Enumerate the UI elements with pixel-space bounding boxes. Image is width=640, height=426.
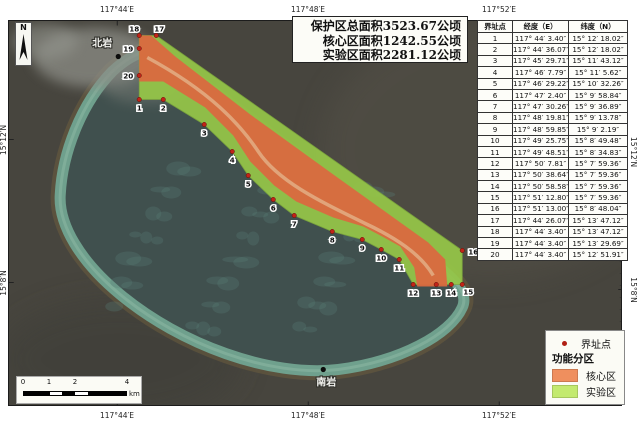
boundary-point-dot	[137, 73, 141, 77]
legend-core-row: 核心区	[552, 367, 620, 383]
longitude-cell: 117° 44′ 3.40″	[513, 238, 569, 249]
longitude-cell: 117° 49′ 25.75″	[513, 135, 569, 146]
boundary-point-number: 14	[446, 289, 456, 298]
longitude-cell: 117° 48′ 19.81″	[513, 112, 569, 123]
boundary-point-dot-icon	[562, 341, 567, 346]
point-id-cell: 1	[478, 33, 513, 44]
point-id-cell: 4	[478, 67, 513, 78]
legend-experimental-row: 实验区	[552, 383, 620, 399]
core-zone-swatch	[552, 369, 578, 382]
point-id-cell: 16	[478, 203, 513, 214]
latitude-cell: 15° 9′ 2.19″	[569, 124, 628, 135]
scale-bar-segment	[62, 392, 75, 395]
table-row: 13117° 50′ 38.64″15° 7′ 59.36″	[478, 169, 628, 180]
table-row: 19117° 44′ 3.40″15° 13′ 29.69″	[478, 238, 628, 249]
latitude-cell: 15° 13′ 29.69″	[569, 238, 628, 249]
latitude-cell: 15° 12′ 51.91″	[569, 249, 628, 260]
north-arrow: N	[15, 22, 32, 66]
table-row: 15117° 51′ 12.80″15° 7′ 59.36″	[478, 192, 628, 203]
rock-dot	[116, 54, 121, 59]
boundary-point-dot	[230, 149, 234, 153]
latitude-cell: 15° 8′ 34.83″	[569, 146, 628, 157]
longitude-cell: 117° 44′ 26.07″	[513, 215, 569, 226]
stats-line-total: 保护区总面积3523.67公顷	[293, 19, 461, 34]
legend-group-title: 功能分区	[552, 351, 620, 367]
scale-tick-label: 4	[125, 378, 129, 386]
latitude-cell: 15° 13′ 47.12″	[569, 215, 628, 226]
table-row: 11117° 49′ 48.51″15° 8′ 34.83″	[478, 146, 628, 157]
point-id-cell: 12	[478, 158, 513, 169]
boundary-point-number: 3	[202, 129, 207, 138]
longitude-cell: 117° 48′ 59.85″	[513, 124, 569, 135]
longitude-cell: 117° 45′ 29.71″	[513, 55, 569, 66]
boundary-point-number: 18	[129, 25, 139, 34]
point-id-cell: 2	[478, 44, 513, 55]
point-id-cell: 13	[478, 169, 513, 180]
point-id-cell: 9	[478, 124, 513, 135]
boundary-point-dot	[460, 282, 464, 286]
legend-experimental-label: 实验区	[586, 384, 616, 399]
boundary-point-number: 8	[330, 236, 335, 245]
table-row: 1117° 44′ 3.40″15° 12′ 18.02″	[478, 33, 628, 44]
longitude-cell: 117° 49′ 48.51″	[513, 146, 569, 157]
latitude-cell: 15° 13′ 47.12″	[569, 226, 628, 237]
boundary-coordinate-table: 界址点 经度（E） 纬度（N） 1117° 44′ 3.40″15° 12′ 1…	[477, 20, 628, 261]
table-row: 12117° 50′ 7.81″15° 7′ 59.36″	[478, 158, 628, 169]
boundary-point-dot	[161, 97, 165, 101]
longitude-cell: 117° 47′ 2.40″	[513, 89, 569, 100]
longitude-cell: 117° 50′ 7.81″	[513, 158, 569, 169]
experimental-zone-swatch	[552, 385, 578, 398]
boundary-point-number: 11	[394, 264, 404, 273]
longitude-cell: 117° 46′ 7.79″	[513, 67, 569, 78]
longitude-cell: 117° 51′ 12.80″	[513, 192, 569, 203]
latitude-cell: 15° 9′ 13.78″	[569, 112, 628, 123]
table-row: 20117° 44′ 3.40″15° 12′ 51.91″	[478, 249, 628, 260]
table-row: 9117° 48′ 59.85″15° 9′ 2.19″	[478, 124, 628, 135]
rock-name-label: 北岩	[92, 37, 112, 50]
point-id-cell: 14	[478, 181, 513, 192]
scale-tick-label: 2	[73, 378, 77, 386]
scale-bar: 0124 km	[16, 376, 142, 404]
latitude-cell: 15° 11′ 43.12″	[569, 55, 628, 66]
boundary-point-dot	[137, 33, 141, 37]
scale-bar-segment	[88, 392, 126, 395]
longitude-cell: 117° 44′ 3.40″	[513, 249, 569, 260]
latitude-cell: 15° 9′ 58.84″	[569, 89, 628, 100]
point-id-cell: 19	[478, 238, 513, 249]
boundary-point-dot	[246, 173, 250, 177]
axis-label-bottom: 117°48′E	[291, 411, 325, 420]
boundary-point-dot	[397, 257, 401, 261]
boundary-point-number: 12	[408, 289, 418, 298]
scale-bar-segment	[24, 392, 50, 395]
table-row: 8117° 48′ 19.81″15° 9′ 13.78″	[478, 112, 628, 123]
latitude-cell: 15° 7′ 59.36″	[569, 192, 628, 203]
table-row: 18117° 44′ 3.40″15° 13′ 47.12″	[478, 226, 628, 237]
axis-label-bottom: 117°52′E	[482, 411, 516, 420]
boundary-point-dot	[460, 248, 464, 252]
scale-bar-unit: km	[129, 390, 140, 398]
boundary-point-number: 19	[123, 45, 133, 54]
north-arrow-icon	[17, 33, 30, 63]
longitude-cell: 117° 44′ 3.40″	[513, 226, 569, 237]
latitude-cell: 15° 10′ 32.26″	[569, 78, 628, 89]
longitude-cell: 117° 44′ 36.07″	[513, 44, 569, 55]
boundary-point-dot	[154, 33, 158, 37]
stats-line-core: 核心区面积1242.55公顷	[293, 34, 461, 49]
axis-label-top: 117°44′E	[100, 5, 134, 14]
boundary-point-dot	[202, 122, 206, 126]
boundary-point-dot	[449, 282, 453, 286]
scale-bar-segment	[50, 392, 63, 395]
axis-label-left: 15°8′N	[0, 270, 8, 295]
latitude-cell: 15° 7′ 59.36″	[569, 158, 628, 169]
longitude-cell: 117° 44′ 3.40″	[513, 33, 569, 44]
legend-boundary-point-row: 界址点	[552, 335, 620, 351]
boundary-point-number: 7	[292, 220, 297, 229]
table-header-longitude: 经度（E）	[513, 21, 569, 33]
boundary-point-dot	[330, 229, 334, 233]
boundary-point-number: 17	[154, 25, 164, 34]
boundary-point-number: 4	[230, 156, 235, 165]
table-header-point: 界址点	[478, 21, 513, 33]
point-id-cell: 7	[478, 101, 513, 112]
boundary-point-number: 10	[376, 254, 386, 263]
table-row: 16117° 51′ 13.00″15° 8′ 48.04″	[478, 203, 628, 214]
point-id-cell: 15	[478, 192, 513, 203]
longitude-cell: 117° 47′ 30.26″	[513, 101, 569, 112]
north-arrow-label: N	[16, 23, 31, 33]
boundary-point-number: 13	[431, 289, 441, 298]
latitude-cell: 15° 8′ 48.04″	[569, 203, 628, 214]
latitude-cell: 15° 12′ 18.02″	[569, 44, 628, 55]
legend-boundary-point-label: 界址点	[581, 336, 611, 351]
stats-line-experimental: 实验区面积2281.12公顷	[293, 48, 461, 63]
boundary-point-dot	[360, 237, 364, 241]
point-id-cell: 17	[478, 215, 513, 226]
boundary-point-number: 6	[271, 204, 276, 213]
boundary-point-number: 1	[137, 104, 142, 113]
scale-bar-segments	[23, 391, 127, 396]
map-sheet: 117°44′E117°48′E117°52′E117°44′E117°48′E…	[0, 0, 640, 426]
boundary-point-number: 15	[463, 288, 473, 297]
rock-name-label: 南岩	[316, 376, 336, 389]
table-row: 6117° 47′ 2.40″15° 9′ 58.84″	[478, 89, 628, 100]
boundary-point-dot	[411, 282, 415, 286]
scale-bar-segment	[75, 392, 88, 395]
boundary-point-dot	[434, 282, 438, 286]
boundary-point-number: 5	[246, 180, 251, 189]
rock-dot	[321, 367, 326, 372]
axis-label-left: 15°12′N	[0, 125, 8, 155]
latitude-cell: 15° 8′ 49.48″	[569, 135, 628, 146]
table-row: 10117° 49′ 25.75″15° 8′ 49.48″	[478, 135, 628, 146]
latitude-cell: 15° 9′ 36.89″	[569, 101, 628, 112]
boundary-point-number: 9	[360, 244, 365, 253]
point-id-cell: 11	[478, 146, 513, 157]
boundary-point-dot	[271, 197, 275, 201]
table-row: 17117° 44′ 26.07″15° 13′ 47.12″	[478, 215, 628, 226]
boundary-point-dot	[292, 213, 296, 217]
latitude-cell: 15° 7′ 59.36″	[569, 181, 628, 192]
table-row: 7117° 47′ 30.26″15° 9′ 36.89″	[478, 101, 628, 112]
table-row: 2117° 44′ 36.07″15° 12′ 18.02″	[478, 44, 628, 55]
axis-label-right: 15°8′N	[629, 277, 638, 302]
point-id-cell: 20	[478, 249, 513, 260]
boundary-point-dot	[137, 97, 141, 101]
legend: 界址点 功能分区 核心区 实验区	[545, 330, 625, 405]
longitude-cell: 117° 46′ 29.22″	[513, 78, 569, 89]
boundary-point-dot	[137, 46, 141, 50]
axis-label-bottom: 117°44′E	[100, 411, 134, 420]
table-header-latitude: 纬度（N）	[569, 21, 628, 33]
table-row: 4117° 46′ 7.79″15° 11′ 5.62″	[478, 67, 628, 78]
table-row: 5117° 46′ 29.22″15° 10′ 32.26″	[478, 78, 628, 89]
latitude-cell: 15° 12′ 18.02″	[569, 33, 628, 44]
point-id-cell: 3	[478, 55, 513, 66]
point-id-cell: 18	[478, 226, 513, 237]
scale-tick-label: 0	[21, 378, 25, 386]
latitude-cell: 15° 11′ 5.62″	[569, 67, 628, 78]
boundary-point-dot	[379, 247, 383, 251]
point-id-cell: 5	[478, 78, 513, 89]
point-id-cell: 6	[478, 89, 513, 100]
longitude-cell: 117° 51′ 13.00″	[513, 203, 569, 214]
boundary-point-number: 2	[161, 104, 166, 113]
point-id-cell: 10	[478, 135, 513, 146]
latitude-cell: 15° 7′ 59.36″	[569, 169, 628, 180]
scale-tick-label: 1	[47, 378, 51, 386]
area-stats-box: 保护区总面积3523.67公顷 核心区面积1242.55公顷 实验区面积2281…	[292, 16, 468, 63]
axis-label-right: 15°12′N	[629, 137, 638, 167]
longitude-cell: 117° 50′ 58.58″	[513, 181, 569, 192]
boundary-point-number: 20	[123, 72, 133, 81]
longitude-cell: 117° 50′ 38.64″	[513, 169, 569, 180]
axis-label-top: 117°48′E	[291, 5, 325, 14]
table-row: 14117° 50′ 58.58″15° 7′ 59.36″	[478, 181, 628, 192]
legend-core-label: 核心区	[586, 368, 616, 383]
table-row: 3117° 45′ 29.71″15° 11′ 43.12″	[478, 55, 628, 66]
point-id-cell: 8	[478, 112, 513, 123]
axis-label-top: 117°52′E	[482, 5, 516, 14]
